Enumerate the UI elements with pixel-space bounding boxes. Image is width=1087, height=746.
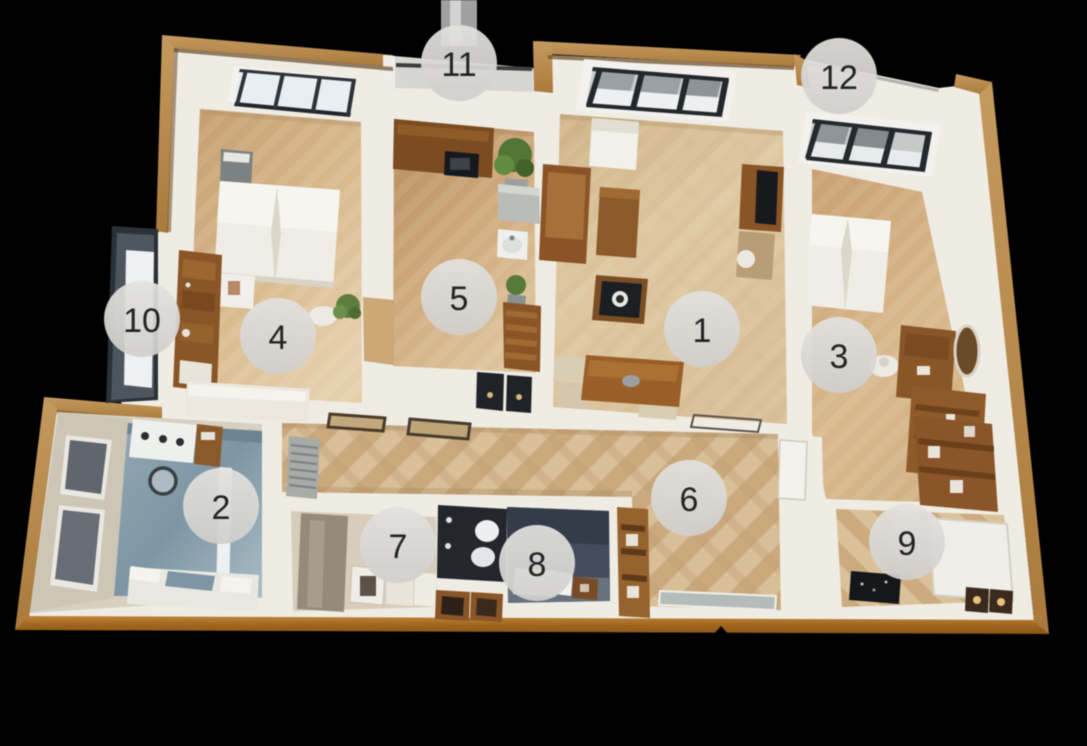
svg-text:12: 12 (820, 59, 858, 97)
svg-text:6: 6 (680, 481, 699, 519)
svg-text:2: 2 (212, 489, 231, 527)
svg-text:9: 9 (898, 525, 917, 563)
svg-text:3: 3 (830, 338, 849, 376)
svg-text:8: 8 (528, 546, 547, 584)
svg-text:11: 11 (441, 46, 476, 84)
svg-text:1: 1 (693, 312, 712, 350)
svg-text:7: 7 (389, 528, 408, 566)
svg-text:10: 10 (123, 302, 161, 340)
svg-text:4: 4 (269, 319, 288, 357)
svg-text:5: 5 (450, 280, 469, 318)
